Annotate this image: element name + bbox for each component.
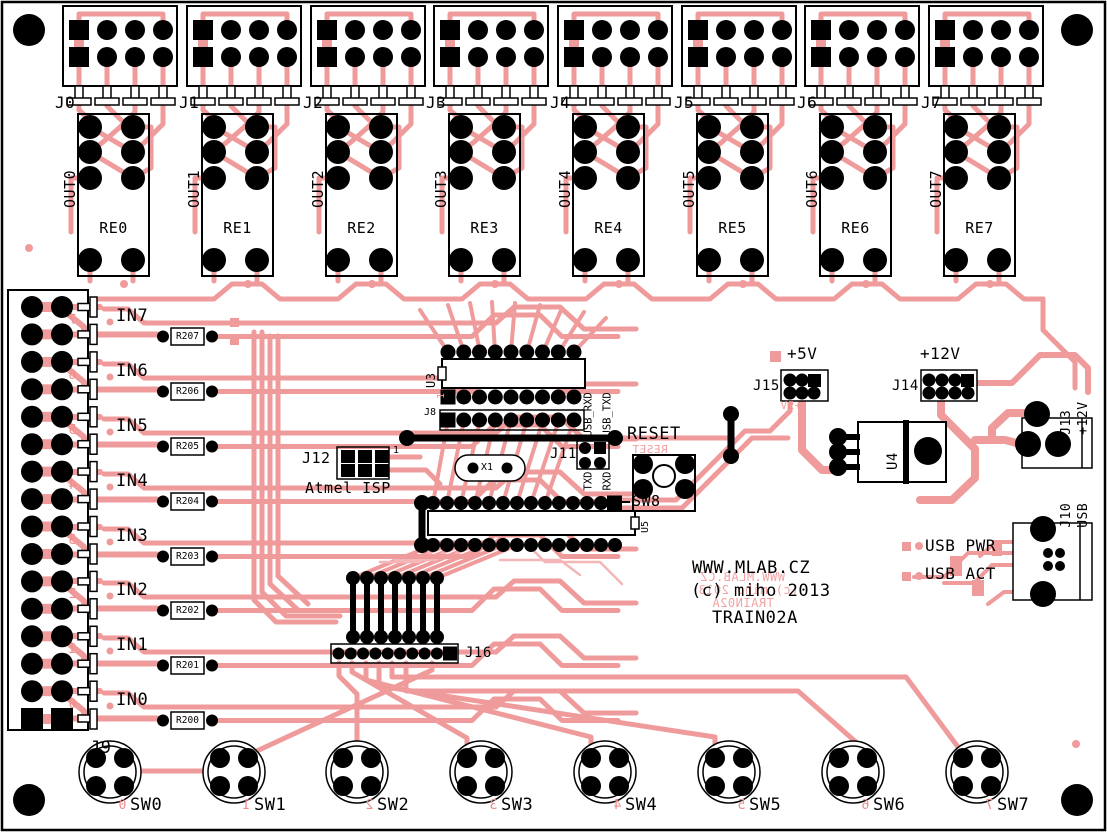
relay-label-re4: RE4 [573,221,644,236]
switch-label-sw3: SW3 [501,797,533,814]
power-label-5v: +5V [787,346,817,362]
power-label-12v: +12V [920,346,961,362]
relay-label-re2: RE2 [326,221,397,236]
isp-header-j12 [337,447,389,479]
relay-label-re0: RE0 [78,221,149,236]
usb-act-label: USB ACT [925,566,996,582]
resistor-label-r207: R207 [171,332,204,342]
connector-label-j7: J7 [921,95,941,111]
switch-number-4: 4 [613,799,621,812]
pin1-mark-u3: 1 [437,392,447,399]
usb-connector-j10 [1013,516,1092,607]
credit-copyright: (c) miho 2013 [691,583,831,600]
credit-board-name: TRAIN02A [712,610,798,627]
j9-pin-number-2: 2 [68,588,76,601]
signal-label-txd: TXD [584,472,595,491]
connector-label-j5: J5 [674,95,694,111]
output-label-out6: OUT6 [805,170,820,208]
header-label-j14: J14 [892,379,919,393]
credit-website: WWW.MLAB.CZ [692,560,810,577]
header-label-j11: J11 [550,447,577,461]
j9-pin-number-5: 5 [68,424,76,437]
connector-label-j0: J0 [55,95,75,111]
resistor-label-r206: R206 [171,387,204,397]
switch-number-0: 0 [118,799,126,812]
switch-label-sw1: SW1 [254,797,286,814]
j13-ref: J13 [1059,401,1076,434]
j9-pin-number-1: 1 [68,643,76,656]
output-label-out1: OUT1 [187,170,202,208]
output-label-out0: OUT0 [63,170,78,208]
power-label-5v-mirror: +5V [780,400,801,411]
signal-label-rxd: RXD [603,472,614,491]
jumper-field-and-j16 [331,571,458,663]
connector-label-j2: J2 [303,95,323,111]
input-label-in6: IN6 [116,363,148,380]
switch-label-sw0: SW0 [130,797,162,814]
pcb-artwork-layer [0,0,1107,832]
relay-label-re6: RE6 [820,221,891,236]
j10-ref: J10 [1059,503,1076,528]
switch-label-sw5: SW5 [749,797,781,814]
input-label-in0: IN0 [116,692,148,709]
switch-number-1: 1 [242,799,250,812]
connector-label-j3: J3 [426,95,446,111]
switch-number-2: 2 [365,799,373,812]
input-label-in7: IN7 [116,308,148,325]
mcu-u5 [426,496,639,553]
j9-pin-number-6: 6 [68,369,76,382]
relay-label-re3: RE3 [449,221,520,236]
j9-pin-number-4: 4 [68,479,76,492]
resistor-label-r202: R202 [171,606,204,616]
connector-label-j4: J4 [550,95,570,111]
output-label-out4: OUT4 [558,170,573,208]
switch-number-3: 3 [489,799,497,812]
reset-label: RESET [627,426,681,443]
connector-label-j1: J1 [179,95,199,111]
switch-number-7: 7 [985,799,993,812]
switch-label-sw4: SW4 [625,797,657,814]
resistor-label-r200: R200 [171,716,204,726]
relay-label-re5: RE5 [697,221,768,236]
header-label-j16: J16 [465,646,492,660]
j13-voltage: +12V [1076,401,1093,434]
output-label-out5: OUT5 [682,170,697,208]
power-header-j14 [921,370,977,401]
relay-connector-blocks [63,6,1043,288]
signal-label-usb-rxd: USB_RXD [584,392,595,436]
connector-label-j13: J13 +12V [1059,401,1093,434]
j9-pin-number-3: 3 [68,534,76,547]
input-label-in4: IN4 [116,473,148,490]
input-label-in3: IN3 [116,528,148,545]
output-label-out2: OUT2 [311,170,326,208]
switch-number-5: 5 [737,799,745,812]
header-label-j12: J12 [302,451,331,466]
switch-label-sw6: SW6 [873,797,905,814]
j9-pin-number-0: 0 [68,698,76,711]
connector-label-j9: J9 [90,740,111,757]
signal-label-usb-txd: USB_TXD [603,392,614,436]
reset-label-mirror: RESET [632,444,668,455]
pin1-mark-j12: 1 [393,446,400,456]
resistor-label-r201: R201 [171,661,204,671]
output-label-out7: OUT7 [929,170,944,208]
power-header-j15 [781,370,828,401]
switch-label-sw7: SW7 [997,797,1029,814]
header-label-j8: J8 [424,408,436,418]
j9-pin-number-7: 7 [68,314,76,327]
switch-footprints [79,741,1008,803]
switch-label-sw8: SW8 [632,494,661,509]
connector-label-j10: J10 USB [1059,503,1093,528]
input-label-in5: IN5 [116,418,148,435]
relay-label-re7: RE7 [944,221,1015,236]
driver-ic-u3-and-j8 [438,345,585,431]
switch-number-6: 6 [861,799,869,812]
ic-label-u4: U4 [886,452,900,470]
resistor-label-r205: R205 [171,442,204,452]
switch-label-sw2: SW2 [377,797,409,814]
input-label-in1: IN1 [116,637,148,654]
ic-label-u3: U3 [425,373,437,388]
ic-label-u5: U5 [641,521,651,533]
connector-label-j6: J6 [797,95,817,111]
input-label-in2: IN2 [116,582,148,599]
output-label-out3: OUT3 [434,170,449,208]
crystal-label-x1: X1 [481,463,493,473]
header-label-j15: J15 [753,379,780,393]
resistor-label-r203: R203 [171,552,204,562]
usb-pwr-label: USB PWR [925,538,996,554]
resistor-label-r204: R204 [171,497,204,507]
isp-caption: Atmel ISP [305,481,391,496]
relay-label-re1: RE1 [202,221,273,236]
pcb-layout-train02a: J0 J1 J2 J3 J4 J5 J6 J7 OUT0 OUT1 OUT2 O… [0,0,1107,832]
j10-type: USB [1076,503,1093,528]
